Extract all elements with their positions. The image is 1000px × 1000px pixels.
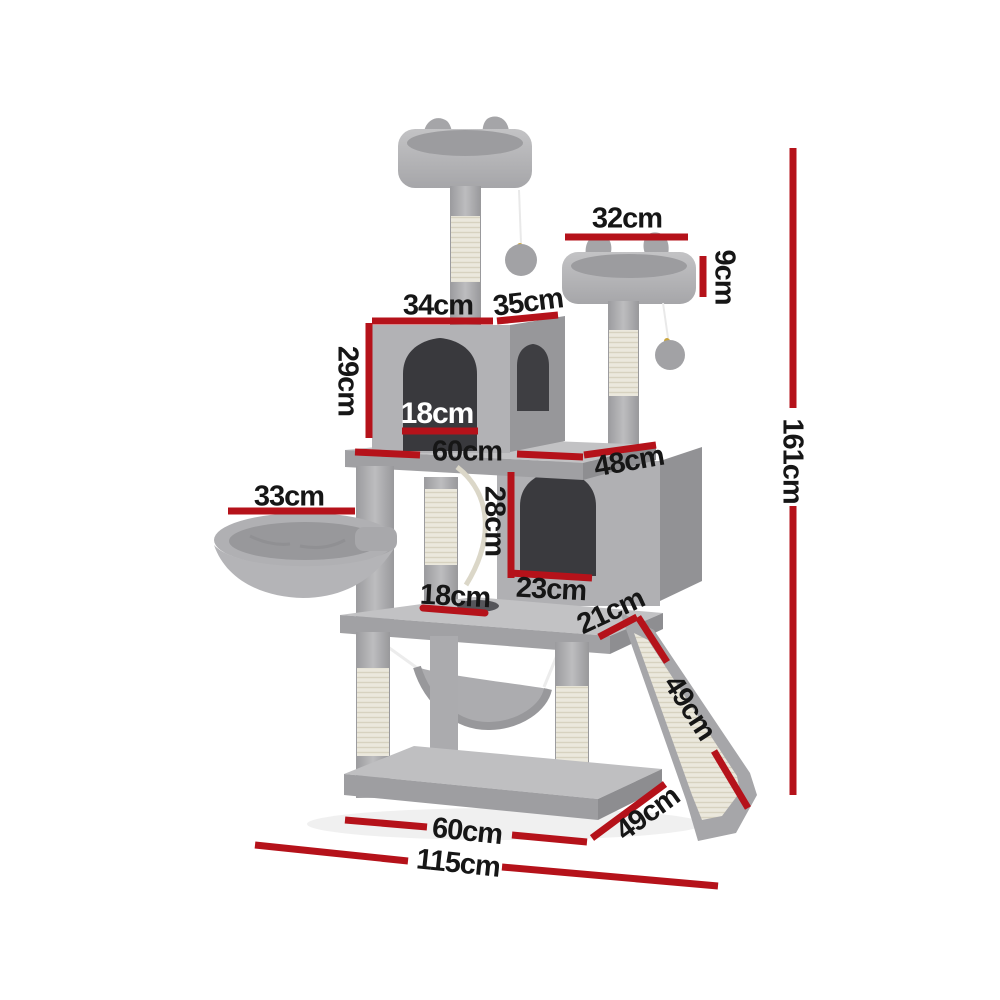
hanging-ball-toy-top bbox=[505, 190, 537, 276]
dim-label-condo2-door-height: 28cm bbox=[478, 486, 511, 556]
top-perch bbox=[398, 117, 532, 188]
dim-label-platform-hole-width: 18cm bbox=[419, 579, 491, 616]
product-dimension-diagram: 32cm 9cm 34cm 35cm 29cm 18cm 60cm 48cm 3… bbox=[0, 0, 1000, 1000]
dim-label-condo-front-width: 34cm bbox=[403, 290, 473, 323]
dim-label-mid-platform-width: 60cm bbox=[432, 436, 502, 469]
dim-line-60cm-mid-right bbox=[517, 454, 583, 457]
base-board bbox=[344, 746, 662, 820]
dim-line-60cm-mid-left bbox=[355, 452, 420, 455]
dim-label-perch-bed-height: 9cm bbox=[708, 249, 741, 304]
dim-label-condo2-door-width: 23cm bbox=[515, 572, 587, 609]
dim-line-115cm-right bbox=[502, 867, 718, 886]
dim-label-condo-door-width: 18cm bbox=[401, 397, 474, 431]
dim-line-115cm-left bbox=[255, 845, 408, 861]
dim-label-condo-height: 29cm bbox=[331, 346, 364, 416]
hammock bbox=[374, 637, 560, 726]
dim-label-top-perch-width: 32cm bbox=[592, 203, 662, 236]
second-perch bbox=[562, 232, 696, 304]
second-scratching-post bbox=[608, 301, 639, 451]
dim-label-total-height: 161cm bbox=[776, 418, 809, 503]
hanging-ball-toy-second bbox=[655, 303, 685, 370]
dim-label-basket-diameter: 33cm bbox=[254, 481, 324, 514]
